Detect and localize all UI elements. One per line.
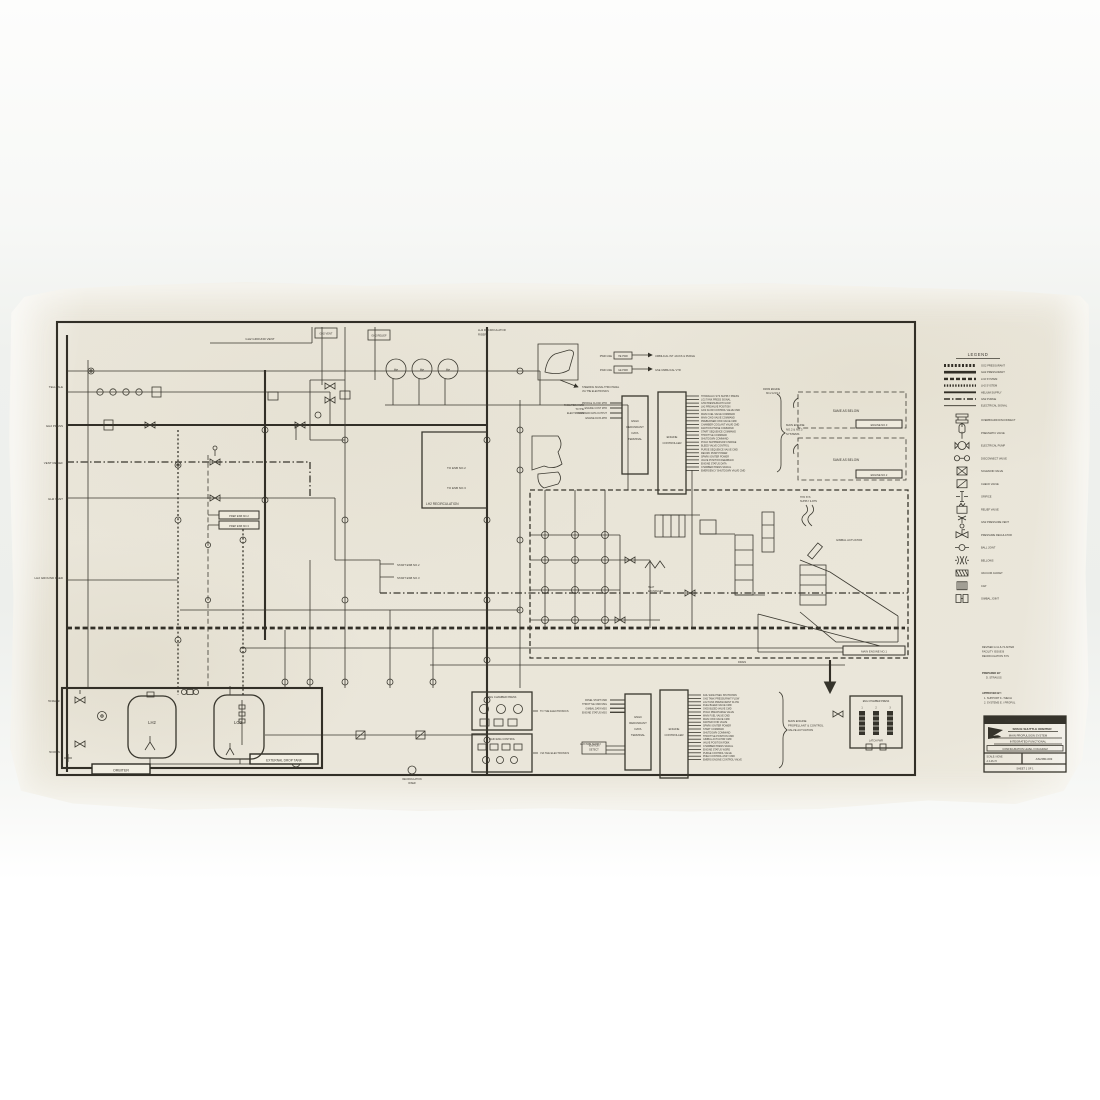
gimbal-joint — [956, 595, 968, 603]
same-as-below-1: SAME AS BELOW — [833, 409, 859, 413]
panels-and-boxes — [92, 328, 905, 778]
controller-upper-1: ENGINE — [667, 435, 678, 439]
lower-signal-label: EMERG ENGINE CONTROL VALVE — [703, 759, 742, 762]
ball-joint — [955, 545, 969, 551]
prep-box-2: PREP ESB NO.3 — [229, 524, 249, 528]
note-appr-3: 2. SYSTEMS E. / PROPUL — [984, 701, 1016, 705]
cab-col-3: 3 — [889, 707, 891, 710]
upper-signal-label: GH2 PRESSURANT FLOW — [701, 402, 731, 405]
legend-symbol-label: VACUUM JACKET — [981, 571, 1003, 575]
lo2-tank-label: LO2 — [234, 720, 243, 725]
upper-signal-label: LO2 TANK PRESS SIGNAL — [701, 399, 731, 402]
upper-signal-label: PREBURNER OXID VALVE CMD — [701, 420, 737, 423]
steer-note-2: VIA THE ELECTRONICS — [582, 390, 609, 393]
lower-input-label: ENGINE STATUS MSG — [582, 712, 607, 715]
upper-signal-label: BLEED VALVE CONTROL — [701, 445, 730, 448]
gnc-lower-3: DATA — [634, 727, 641, 731]
from-engine-1: FROM ENGINE — [763, 388, 780, 391]
start-label-1: START ESB NO.2 — [397, 563, 420, 567]
note-rev-2: FACILITY ISSUE B — [982, 650, 1004, 654]
check-valve — [957, 480, 967, 488]
schematic-drawing: TELLTALE GH2 PRESS VENT RELIEF GH2 VENT … — [0, 0, 1100, 1100]
legend-symbol-label: DISCONNECT VALVE — [981, 456, 1007, 460]
legend-line-label: GO2 PRESSURANT — [981, 364, 1005, 368]
orifice — [956, 492, 968, 502]
upper-signal-label: IGNITION PHASE COMMAND — [701, 427, 734, 430]
title-sheet: SHEET 1 OF 1 — [1016, 767, 1034, 771]
umbilical-2: GSE UMBILICAL VTR — [655, 368, 681, 372]
steer-note-1: STEERING SIGNAL THRU PANEL — [582, 386, 620, 389]
upper-input-label: COMMAND DATA OUTPUT — [577, 412, 607, 415]
upper-signal-label: THROTTLE COMMAND — [701, 434, 727, 437]
upper-signal-label: SHUTDOWN COMMAND — [701, 438, 729, 441]
legend-symbol-label: SOLENOID VALVE — [981, 469, 1003, 473]
labels: TELLTALE GH2 PRESS VENT RELIEF GH2 VENT … — [34, 328, 891, 785]
upper-signal-label: START SEQUENCE COMMAND — [701, 431, 736, 434]
lower-brace-1: MAIN ENGINE — [788, 719, 807, 723]
disconnect-valve — [954, 456, 969, 461]
cab-title: ENG CHAMBER PRESS — [863, 700, 890, 703]
tanks — [128, 695, 264, 759]
relief-valve — [957, 503, 967, 513]
photo-of-schematic: TELLTALE GH2 PRESS VENT RELIEF GH2 VENT … — [0, 0, 1100, 1100]
bellows — [955, 556, 969, 564]
lower-input-label: GIMBAL DATA MSG — [585, 707, 607, 710]
upper-signal-label: MAIN FUEL VALVE COMMAND — [701, 413, 735, 416]
to-electronics: TO THE ELECTRONICS — [540, 709, 569, 713]
ge-pwr-box: GE PWR — [618, 369, 628, 372]
grumman-logo — [988, 727, 1003, 739]
note-appr-2: 1. SUPPORT F. / MECH — [984, 696, 1012, 700]
gnc-lower-1: GN&C — [634, 715, 642, 719]
legend-symbol-label: ELECTRICAL PUMP — [981, 444, 1005, 448]
gnc-lower-4: TERMINAL — [631, 733, 646, 737]
gauge-3: He — [446, 368, 450, 372]
label-gh2-vent: GH2 VENT — [48, 497, 63, 501]
vacuum-jacket — [956, 570, 968, 576]
ext-tank-caption: EXTERNAL DROP TANK — [266, 759, 303, 763]
hyd-label-2: SUPPLY & RTN — [800, 500, 817, 503]
overboard-disconnect — [956, 414, 968, 427]
legend-symbol-label: RELIEF VALVE — [981, 507, 999, 511]
legend-line-label: LO2 SYSTEM — [981, 377, 997, 381]
lower-input-label: THROTTLE CMD MSG — [582, 703, 607, 706]
label-vent-relief: VENT RELIEF — [44, 461, 63, 465]
upper-signal-label: ENGINE STATUS DATA — [701, 462, 727, 465]
gnc-upper-2: REDUNDANT — [626, 425, 644, 429]
controller-lower-1: ENGINE — [669, 727, 680, 731]
heat-exchanger-1: HEAT — [648, 586, 655, 589]
label-vent-box: GH2 VENT — [320, 332, 333, 336]
upper-signal-label: RECIRC PUMP POWER — [701, 452, 728, 455]
lower-input-label: PANEL START CMD — [585, 699, 607, 702]
upper-signal-label: POGO SUPPRESSOR CHARGE — [701, 441, 737, 444]
facilities-2: TO THE — [575, 408, 584, 411]
lower-input-list: PANEL START CMDTHROTTLE CMD MSGGIMBAL DA… — [582, 699, 625, 715]
upper-signal-label: PURGE SEQUENCE VALVE CMD — [701, 448, 738, 451]
upper-brace-3: SYSTEMS — [786, 432, 800, 436]
upper-signal-list: HYDRAULIC SYS SUPPLY PRESSLO2 TANK PRESS… — [686, 395, 746, 473]
legend-symbol-label: GIMBAL JOINT — [981, 597, 999, 601]
umbilical-1: UMBILICAL INT JACKS & PURGE — [655, 354, 695, 358]
upper-input-label: ENGINE CONT MTR — [585, 407, 608, 410]
orbiter-tag: ORBITER — [113, 769, 129, 773]
recirc-l2: TO ESB NO.3 — [447, 486, 466, 490]
label-riser2: RISER — [478, 333, 487, 337]
upper-signal-label: CHAMBER COOLANT VALVE CMD — [701, 423, 740, 426]
lower-brace-3: VALVE ACTUATION — [788, 728, 813, 732]
legend: LEGEND GO2 PRESSURANTGH2 PRESSURANTLO2 S… — [944, 352, 1016, 603]
legend-symbol-label: PNEUMATIC VALVE — [981, 431, 1005, 435]
upper-brace-2: NO.2 & NO.3 — [786, 428, 803, 432]
label-riser1: LH2 RECIRCULATOR — [478, 328, 506, 332]
title-scale: SCALE: NONE — [987, 756, 1003, 759]
label-telltale: TELLTALE — [49, 385, 63, 389]
upper-signal-label: GO2 FLOW CONTROL VALVE CMD — [701, 409, 740, 412]
label-relief-box: GH2 RELIEF — [371, 334, 387, 338]
lh2-tank-label: LH2 — [148, 720, 156, 725]
upper-signal-label: HYDRAULIC SYS SUPPLY PRESS — [701, 395, 739, 398]
title-company: GRUMMAN AEROSPACE — [1005, 719, 1046, 723]
upper-brace-1: MAIN ENGINE — [786, 423, 805, 427]
title-line1: MAIN PROPULSION SYSTEM — [1009, 734, 1048, 738]
main-engine-tag: MAIN ENGINE NO.1 — [861, 650, 887, 654]
legend-line-label: HELIUM SUPPLY — [981, 390, 1002, 394]
h2-relief-label: H2 RELIEF — [48, 700, 61, 703]
legend-symbol-label: ORIFICE — [981, 495, 992, 499]
riser-note-1: RECIRCULATION — [402, 778, 422, 781]
drain-label: DRAIN — [738, 660, 746, 664]
upper-signal-label: MAIN OXID VALVE COMMAND — [701, 416, 735, 419]
label-gh2-press: GH2 PRESS — [46, 424, 63, 428]
panel2-title: MAIN ENG CONTROL — [489, 737, 516, 741]
recirc-l1: TO ESB NO.2 — [447, 466, 466, 470]
cab-col-2: 2 — [875, 707, 877, 710]
hyd-label-1: HYD SYS — [800, 496, 811, 499]
title-line3: CONFIGURATION LEVEL II DIAGRAM — [1002, 747, 1047, 751]
engine-no3-tag: ENGINE NO.3 — [871, 423, 888, 427]
gnc-upper-3: DATA — [631, 431, 638, 435]
note-rev-1: REVISED A 11-6-72 AFTER — [982, 645, 1014, 649]
pressure-vent — [958, 516, 966, 528]
legend-line-label: LH2 SYSTEM — [981, 384, 997, 388]
title-date: A 4-26-72 — [987, 760, 998, 763]
legend-symbol-label: GN2 PRESSURE VENT — [981, 520, 1009, 524]
title-line2: INTEGRATED FUNCTIONAL — [1010, 740, 1047, 744]
upper-brace — [777, 394, 785, 472]
controller-upper-2: CONTROLLER — [662, 441, 681, 445]
from-engine-2: NO.2 & NO.3 — [766, 392, 781, 395]
ignition-2: DETECT — [589, 749, 599, 752]
fwd-gse-label: FWD GSE — [600, 368, 612, 372]
gimbal-label: GIMBAL ACTUATOR — [836, 538, 862, 542]
legend-line-label: GH2 PRESSURANT — [981, 370, 1005, 374]
cab-sub: LATCH PWR — [869, 740, 883, 743]
note-appr-1: APPROVED BY: — [982, 691, 1002, 695]
pwr-gse-label: PWR GSE — [600, 354, 613, 358]
engine-no2-tag: ENGINE NO.2 — [871, 473, 888, 477]
lower-signal-list: FAIL SAFE PNEU SHUTDOWNGH2 TANK PRESSURA… — [688, 694, 742, 762]
recirc-caption: LH2 RECIRCULATION — [426, 502, 459, 506]
start-label-2: START ESB NO.3 — [397, 576, 420, 580]
cab-col-1: 1 — [861, 707, 863, 710]
legend-symbol-label: CAP — [981, 584, 987, 588]
upper-signal-label: SPARK IGNITER POWER — [701, 455, 729, 458]
note-prep-2: D. STRAUSS — [986, 676, 1002, 680]
lower-brace — [779, 692, 787, 768]
solenoid-valve — [957, 467, 967, 475]
gauge-2: He — [420, 368, 424, 372]
via-electronics: VIA THE ELECTRONICS — [540, 751, 569, 755]
heat-exchanger-2: EXCHANGER — [648, 590, 663, 593]
note-rev-3: RECIRCULATION SYS — [982, 654, 1009, 658]
cap — [957, 582, 967, 590]
gnc-lower-2: REDUNDANT — [629, 721, 647, 725]
legend-symbol-label: PRESSURE REGULATOR — [981, 533, 1012, 537]
he-pwr-box: HE PWR — [618, 355, 628, 358]
ignition-1: IGNITION — [589, 745, 600, 748]
upper-input-label: PROFILE CLOCK MTR — [582, 402, 607, 405]
note-prep-1: PREPARED BY — [982, 671, 1001, 675]
title-block: GRUMMAN AEROSPACE SPACE SHUTTLE ORBITER … — [984, 716, 1066, 772]
prep-box-1: PREP ESB NO.2 — [229, 514, 249, 518]
legend-symbol-label: BALL JOINT — [981, 546, 996, 550]
electrical-pump — [955, 442, 969, 450]
legend-symbol-label: BELLOWS — [981, 558, 994, 562]
label-ground-feed: LH2 GROUND FEED — [34, 576, 63, 580]
pipe-network — [67, 327, 908, 775]
label-ground-vent: GH2 GROUND VENT — [245, 337, 274, 341]
lower-brace-2: PROPELLANT & CONTROL — [788, 724, 824, 728]
upper-signal-label: EMERGENCY SHUTDOWN VALVE CMD — [701, 470, 746, 473]
upper-signal-label: LH2 PREVALVE POSITION — [701, 406, 731, 409]
panel1-title: ENG CHAMBER PRESS — [488, 695, 517, 699]
upper-signal-label: CHAMBER PRESS SIGNAL — [701, 466, 732, 469]
h2-drain-label: H2 DRAIN — [49, 751, 60, 754]
gauge-1: He — [394, 368, 398, 372]
legend-symbol-label: CHECK VALVE — [981, 482, 999, 486]
gnc-upper-1: GN&C — [631, 419, 639, 423]
gnc-upper-4: TERMINAL — [628, 437, 643, 441]
legend-symbol-label: OVERBOARD DISCONNECT — [981, 418, 1016, 422]
controller-lower-2: CONTROLLER — [664, 733, 683, 737]
title-product: SPACE SHUTTLE ORBITER — [1012, 727, 1052, 731]
upper-input-label: ENGINE DATA MTR — [585, 417, 607, 420]
legend-title: LEGEND — [968, 352, 989, 357]
title-dwg-no: ASL580-003 — [1036, 757, 1053, 761]
notes-block: REVISED A 11-6-72 AFTER FACILITY ISSUE B… — [982, 645, 1016, 705]
riser-note-2: RISER — [408, 782, 416, 785]
legend-line-label: GN2 PURGE — [981, 397, 997, 401]
regulator — [956, 530, 968, 538]
upper-signal-label: VALVE POSITION FEEDBACK — [701, 459, 734, 462]
legend-line-label: ELECTRICAL SIGNAL — [981, 404, 1008, 408]
same-as-below-2: SAME AS BELOW — [833, 458, 859, 462]
